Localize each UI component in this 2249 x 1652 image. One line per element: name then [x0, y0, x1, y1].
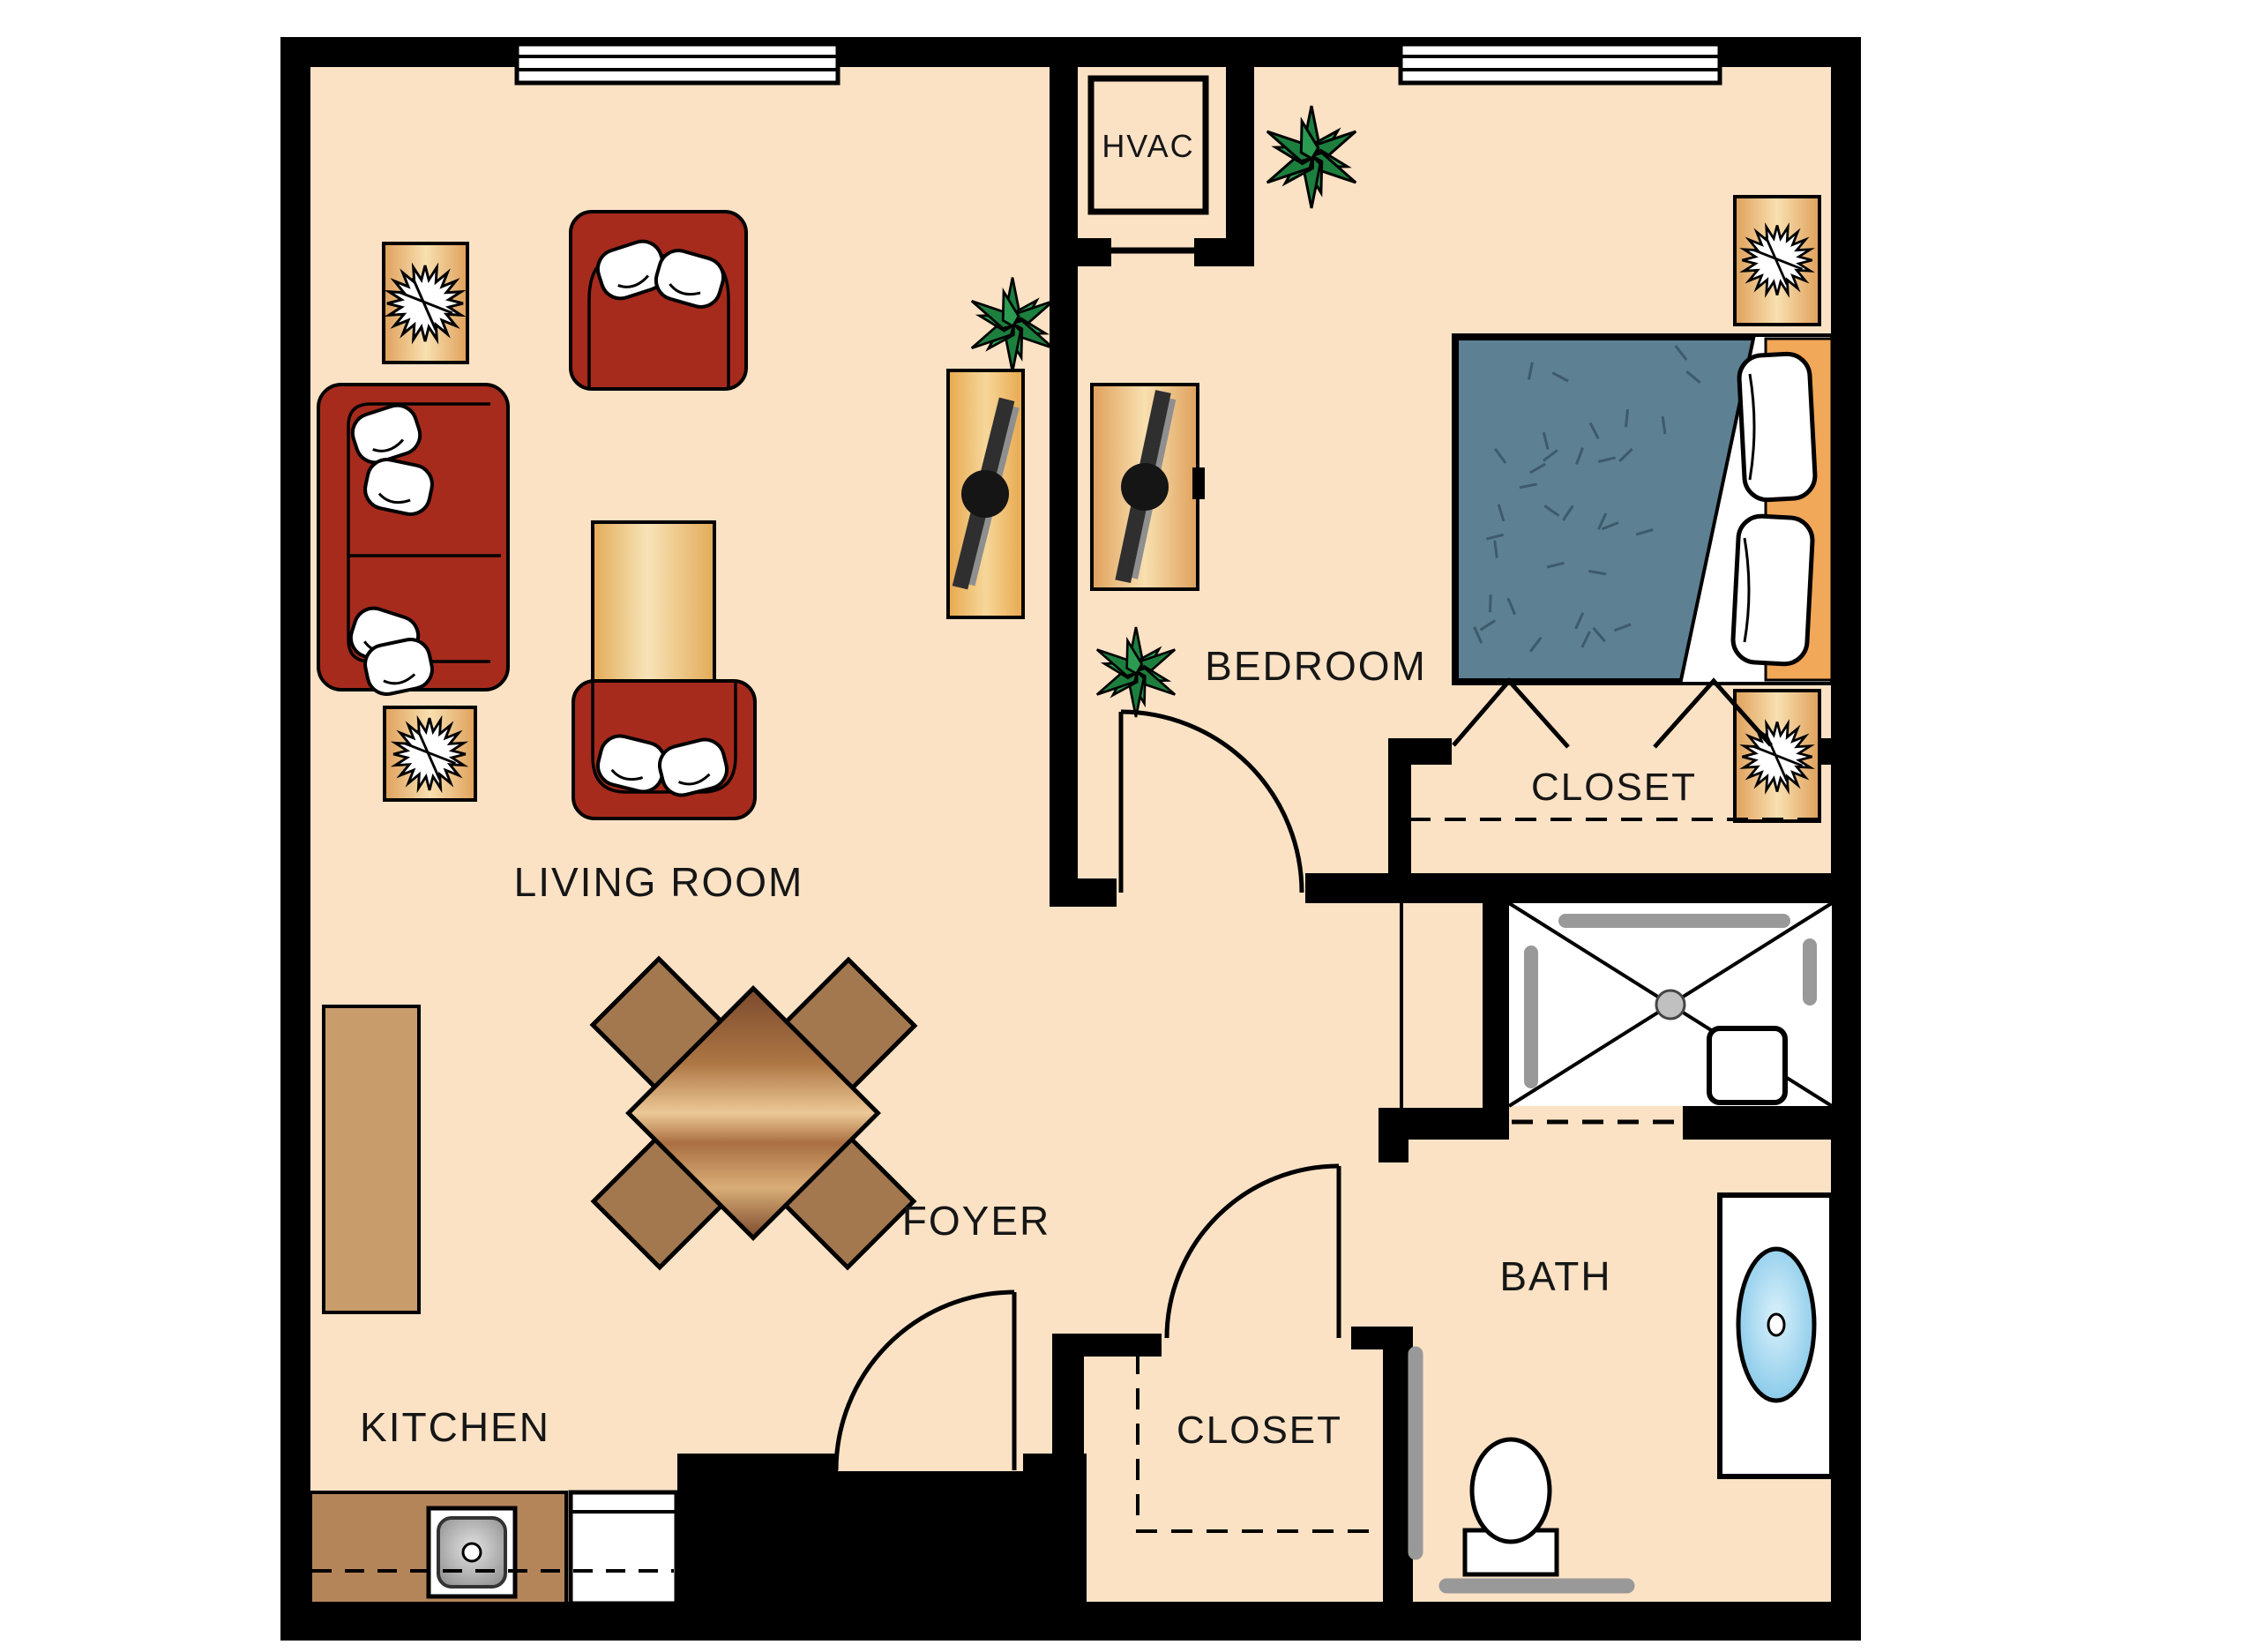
wall-bedroom-closet-west [1388, 738, 1411, 875]
coffee-table [593, 522, 714, 690]
kitchen-island [324, 1006, 419, 1312]
wall-hvac-right [1226, 67, 1254, 266]
wall-closet-bottom [1305, 873, 1861, 903]
room-label-hvac: HVAC [1102, 128, 1194, 164]
wall-hvac-left [1050, 67, 1078, 266]
floor-plan-page: LIVING ROOM BEDROOM KITCHEN FOYER BATH C… [0, 0, 2249, 1652]
wall-bath-bar-foot [1379, 1140, 1408, 1162]
room-label-foyer-closet: CLOSET [1177, 1409, 1342, 1452]
window-living-room [517, 44, 838, 83]
toilet [1465, 1439, 1557, 1574]
bed [1453, 335, 1832, 684]
wall-hvac-post-right [1194, 238, 1226, 266]
kitchen-sink [429, 1508, 515, 1596]
tv-console-living [938, 370, 1032, 617]
wall-living-bedroom-divider [1050, 265, 1078, 880]
room-label-foyer: FOYER [902, 1198, 1050, 1244]
faucet-hole [463, 1544, 481, 1561]
floor-plan: LIVING ROOM BEDROOM KITCHEN FOYER BATH C… [0, 0, 2249, 1652]
range [571, 1492, 676, 1603]
bed-pillow [1732, 515, 1814, 665]
wall-entry-alcove [677, 1454, 1087, 1602]
wall-left [280, 37, 310, 1641]
toilet-bowl [1472, 1439, 1550, 1542]
wall-foyer-closet-west [1052, 1334, 1084, 1464]
window-bedroom [1401, 44, 1720, 83]
shower-seat [1709, 1028, 1785, 1103]
wall-foyer-closet-east-cap [1351, 1327, 1413, 1349]
console-knob [1192, 467, 1205, 499]
room-label-bedroom-closet: CLOSET [1531, 766, 1697, 809]
room-label-bath: BATH [1499, 1253, 1611, 1299]
room-label-bedroom: BEDROOM [1205, 643, 1427, 689]
room-label-living-room: LIVING ROOM [514, 859, 804, 905]
wall-right [1831, 37, 1861, 1641]
shower-drain [1656, 990, 1685, 1019]
wall-shower-bottom [1683, 1106, 1833, 1140]
wall-hvac-post-left [1078, 238, 1111, 266]
armchair-south [573, 681, 755, 819]
armchair-north [571, 212, 746, 389]
wall-shower-west [1483, 903, 1509, 1108]
tv-console-bedroom [1092, 385, 1205, 589]
shower [1509, 903, 1832, 1122]
wall-divider-foot [1050, 878, 1117, 907]
dining-set [593, 959, 915, 1267]
wall-bath-bar [1379, 1108, 1509, 1140]
wall-bedroom-closet-west-stub [1411, 738, 1452, 765]
wall-foyer-closet-top-stub [1084, 1334, 1162, 1357]
room-label-kitchen: KITCHEN [360, 1404, 550, 1450]
sofa [318, 385, 508, 698]
sink-drain [1768, 1314, 1784, 1335]
wall-bottom [280, 1602, 1861, 1641]
